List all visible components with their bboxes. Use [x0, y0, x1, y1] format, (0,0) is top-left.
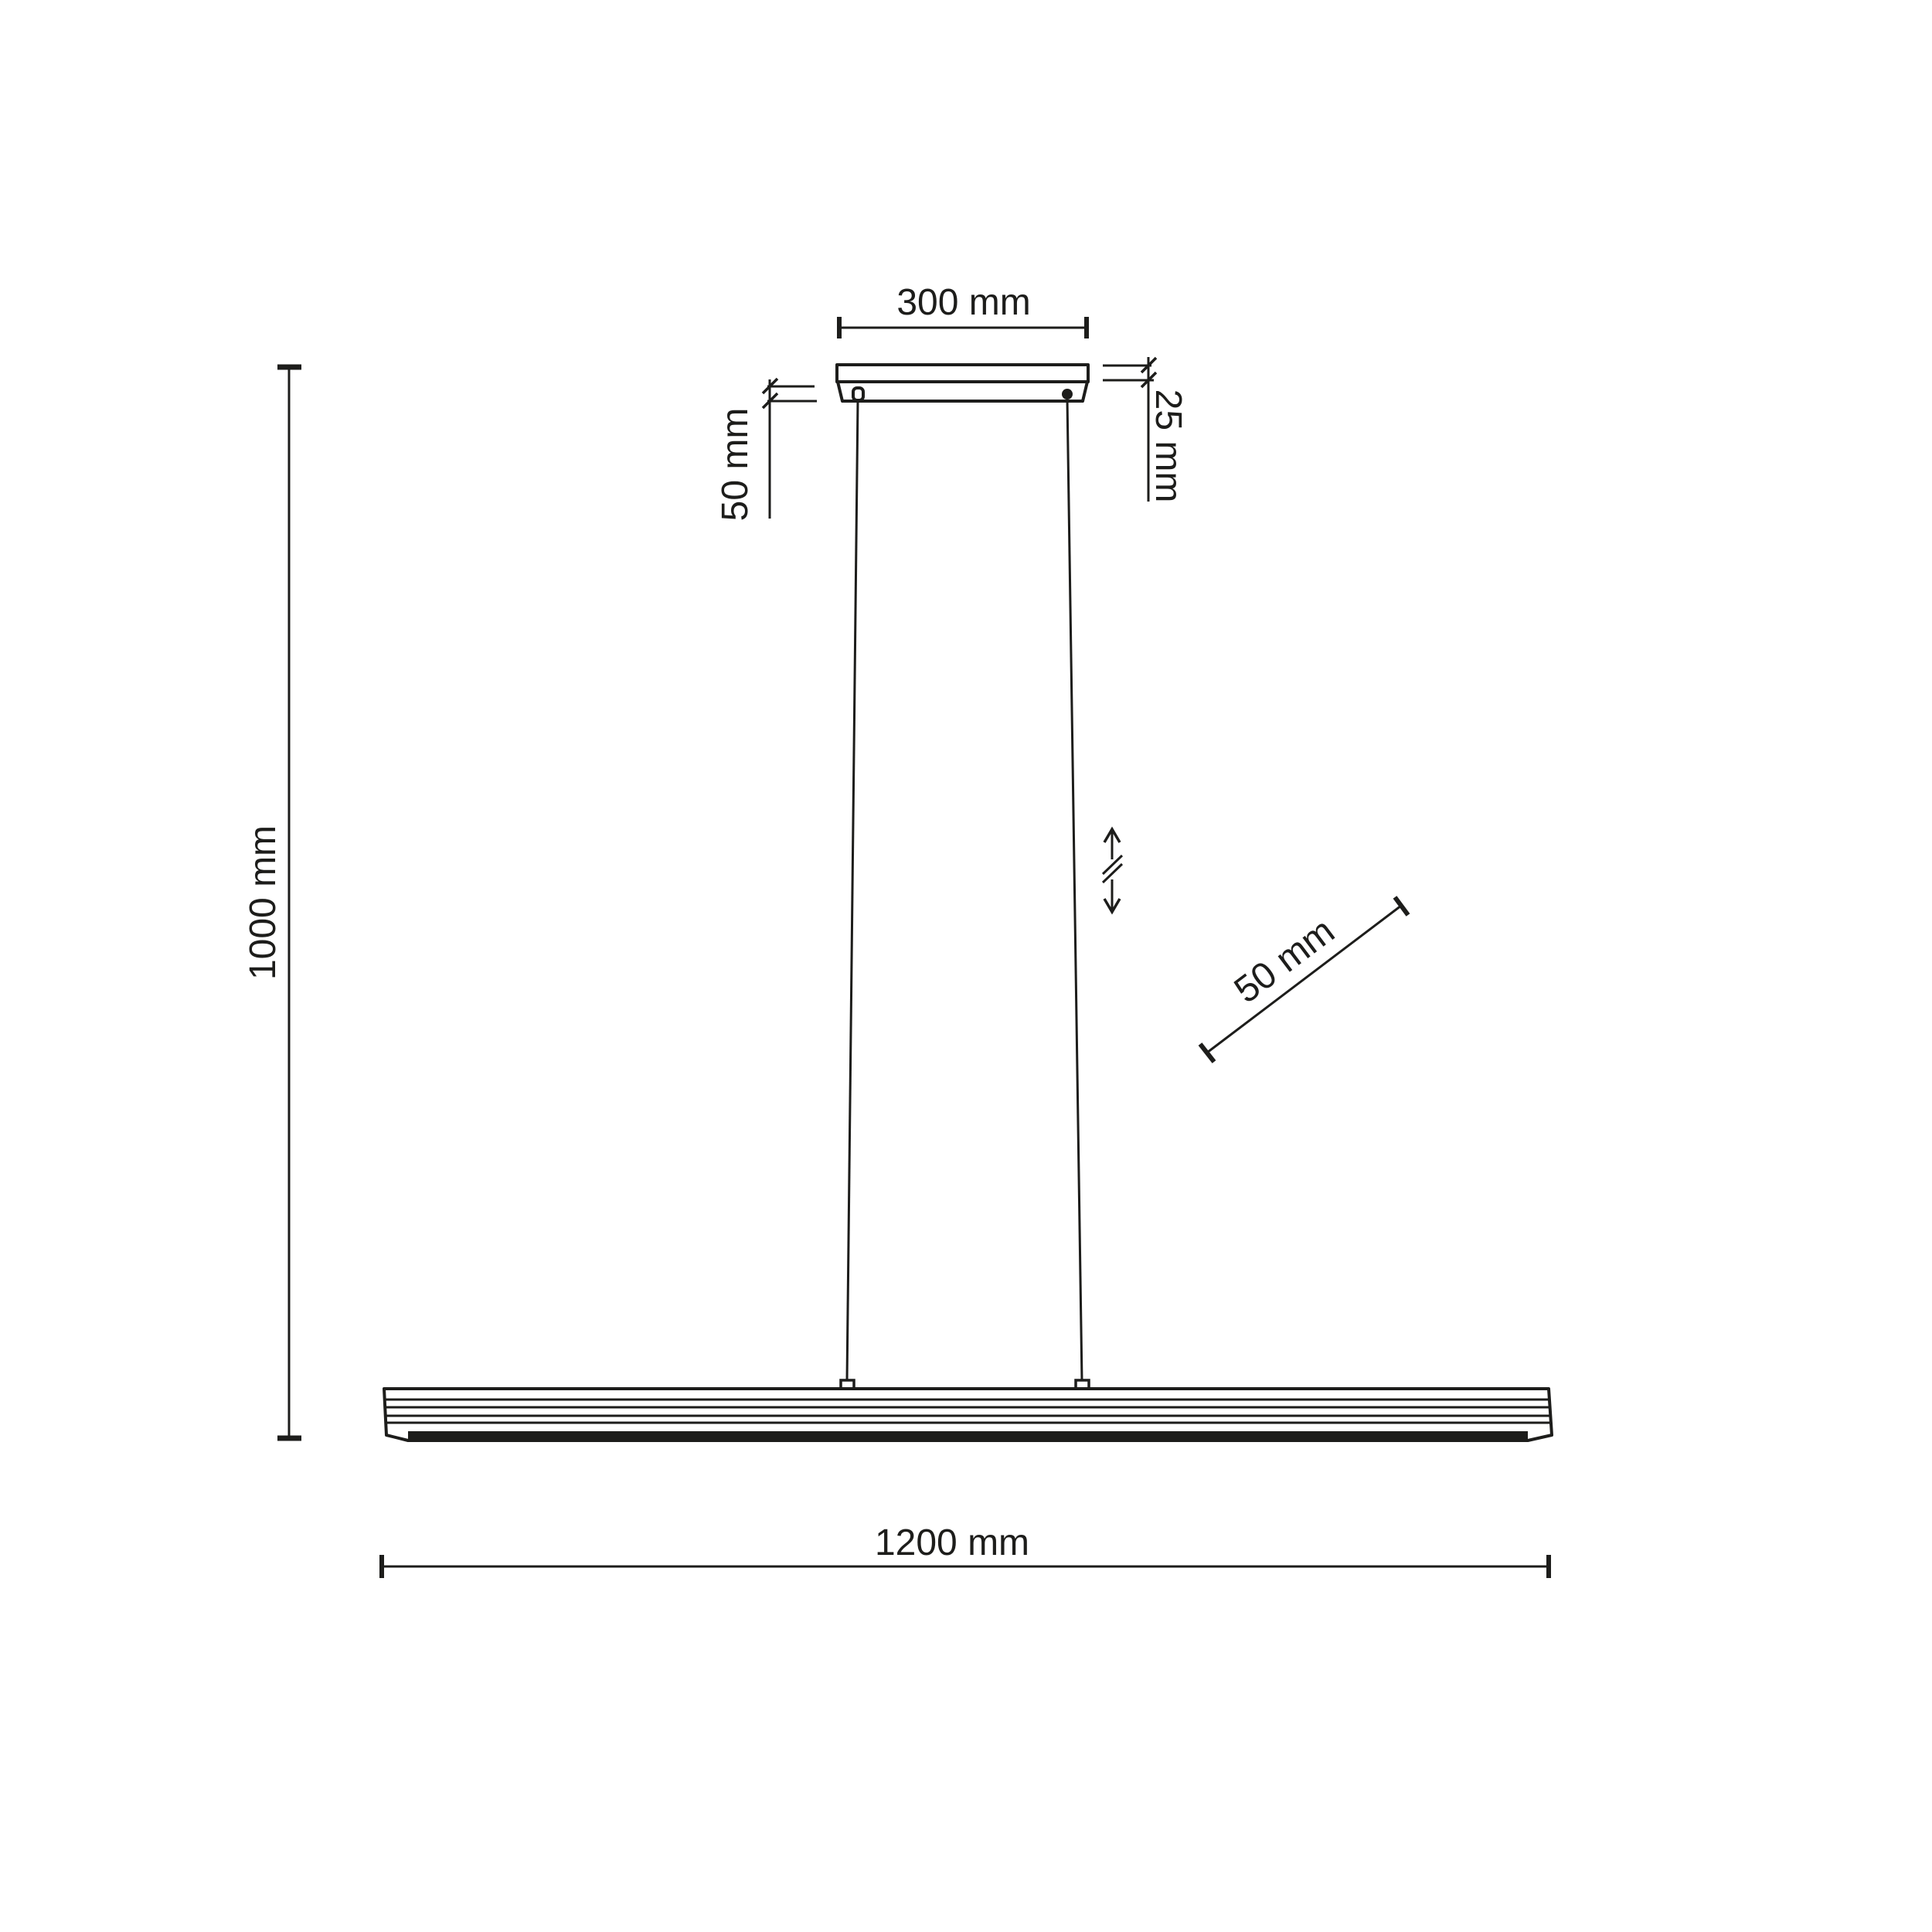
- canopy-bottom-plate: [838, 382, 1087, 401]
- dim-label-cable-adjustment: 50 mm: [1227, 910, 1342, 1012]
- dimension-canopy-width: 300 mm: [839, 282, 1087, 338]
- dimension-canopy-offset: 50 mm: [715, 379, 817, 521]
- fixture-bar-diffuser-stripe: [408, 1431, 1528, 1440]
- canopy-cable-grommet-left: [853, 388, 863, 400]
- height-adjustable-icon: [1103, 829, 1122, 912]
- dim-tick-50-diag-upper: [1395, 897, 1408, 915]
- suspension-wire-right: [1067, 399, 1082, 1381]
- suspension-wires: [847, 399, 1082, 1381]
- canopy-top-body: [837, 365, 1088, 382]
- pendant-lamp-dimension-diagram: 300 mm 50 mm: [0, 0, 1932, 1932]
- ceiling-canopy: [837, 365, 1088, 401]
- dim-label-canopy-offset: 50 mm: [715, 408, 756, 522]
- dim-label-canopy-thickness: 25 mm: [1148, 389, 1189, 503]
- dimension-fixture-length: 1200 mm: [382, 1522, 1549, 1578]
- canopy-cable-grommet-right: [1062, 389, 1073, 400]
- dimension-canopy-thickness: 25 mm: [1103, 357, 1189, 502]
- dimension-cable-adjustment: 50 mm: [1200, 897, 1408, 1062]
- fixture-bar: [384, 1380, 1552, 1440]
- dim-label-overall-height: 1000 mm: [243, 825, 284, 980]
- dim-tick-50-diag-lower: [1200, 1044, 1214, 1062]
- suspension-wire-left: [847, 400, 858, 1381]
- dimension-overall-height: 1000 mm: [243, 367, 301, 1438]
- drawing-canvas: 300 mm 50 mm: [0, 0, 1932, 1932]
- dim-label-fixture-length: 1200 mm: [875, 1522, 1029, 1563]
- dim-label-canopy-width: 300 mm: [896, 282, 1030, 323]
